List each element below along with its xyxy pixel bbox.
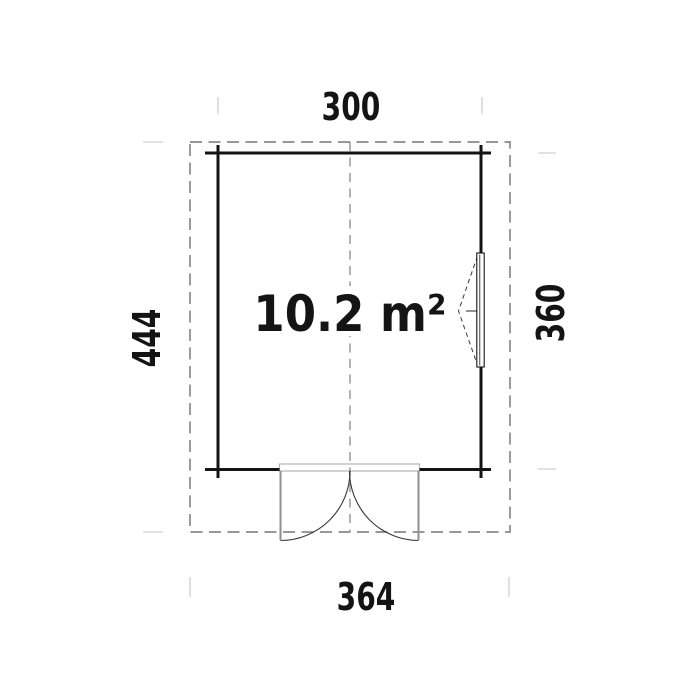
window-frame bbox=[477, 253, 484, 367]
window bbox=[459, 253, 485, 367]
dim-label-left: 444 bbox=[125, 309, 169, 368]
dim-label-right: 360 bbox=[529, 284, 573, 343]
area-label: 10.2 m² bbox=[253, 286, 446, 344]
door-swing-right bbox=[350, 471, 419, 541]
floor-plan-drawing: 10.2 m² 300 364 444 360 bbox=[0, 0, 700, 700]
door-swing-left bbox=[281, 471, 351, 541]
dim-label-top: 300 bbox=[322, 85, 381, 129]
dim-label-bottom: 364 bbox=[337, 575, 396, 619]
floor-plan: 10.2 m² 300 364 444 360 bbox=[0, 0, 700, 700]
